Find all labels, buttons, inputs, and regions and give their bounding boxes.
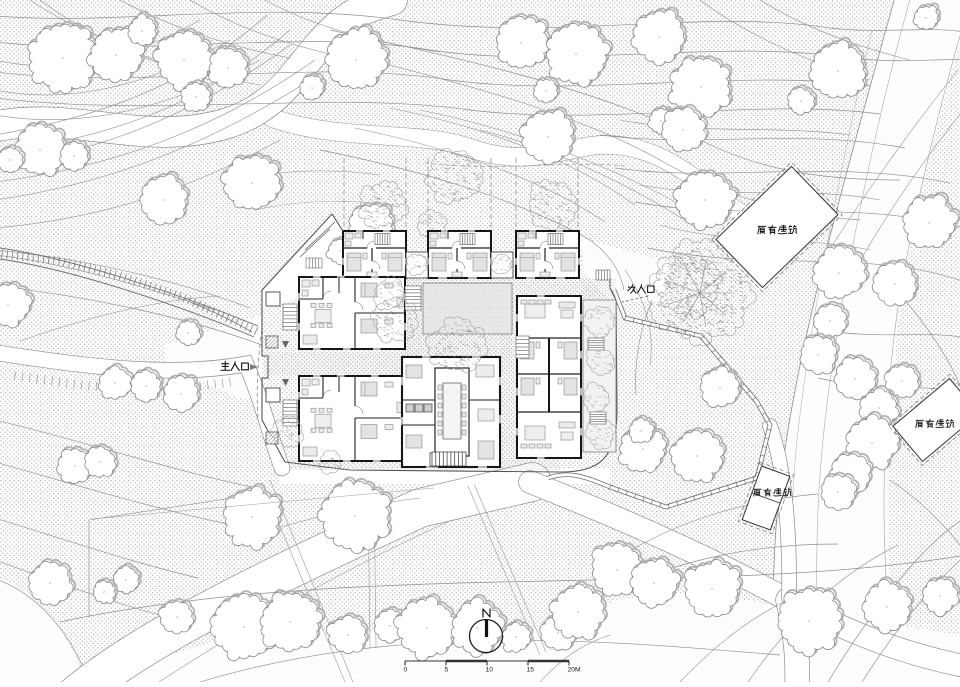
svg-text:5: 5 bbox=[445, 667, 449, 674]
svg-text:15: 15 bbox=[527, 667, 535, 674]
svg-text:10: 10 bbox=[486, 667, 494, 674]
svg-text:0: 0 bbox=[404, 667, 408, 674]
svg-text:20M: 20M bbox=[568, 667, 582, 674]
